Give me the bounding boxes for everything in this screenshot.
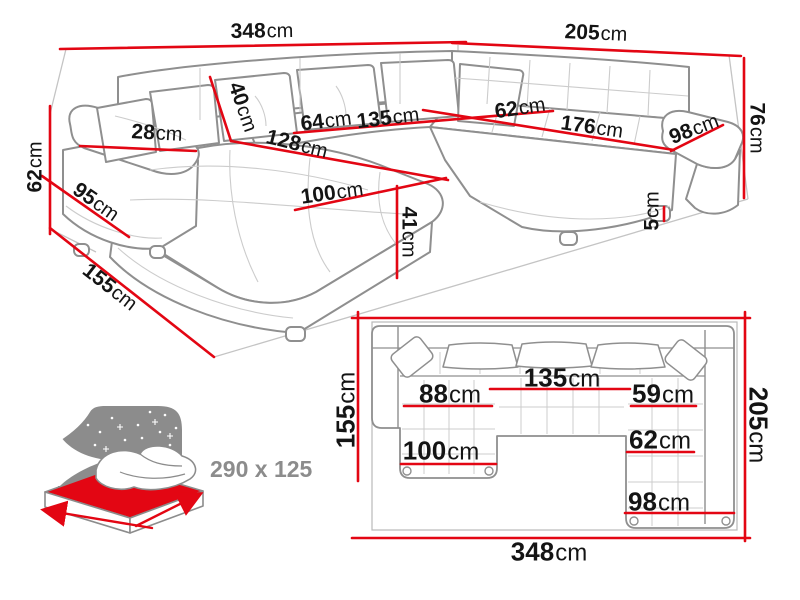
plan-dim-135cm: 135cm	[524, 365, 600, 392]
bed-icon	[44, 406, 203, 533]
sofa-dimension-diagram: 348cm 205cm 76cm 62cm 155cm 40cm 28cm 95…	[0, 0, 800, 600]
plan-dim-205cm: 205cm	[745, 387, 772, 463]
plan-dim-100cm: 100cm	[403, 438, 479, 465]
plan-dim-348cm: 348cm	[511, 539, 587, 566]
dim-62cm-left: 62cm	[25, 141, 46, 192]
sleeping-area-size-label: 290 x 125	[210, 458, 312, 481]
dim-76cm-right: 76cm	[747, 102, 768, 153]
dim-205cm-top: 205cm	[564, 21, 628, 45]
dim-348cm-top: 348cm	[230, 20, 293, 42]
dim-28cm-armrest: 28cm	[131, 121, 183, 145]
plan-dim-98cm: 98cm	[628, 489, 690, 516]
plan-dim-155cm: 155cm	[333, 372, 360, 448]
plan-dim-59cm: 59cm	[632, 381, 694, 408]
plan-dim-88cm: 88cm	[419, 381, 481, 408]
dim-5cm-leg: 5cm	[642, 191, 663, 230]
dim-41cm-seat-height: 41cm	[399, 206, 420, 257]
plan-dim-62cm: 62cm	[629, 427, 691, 454]
